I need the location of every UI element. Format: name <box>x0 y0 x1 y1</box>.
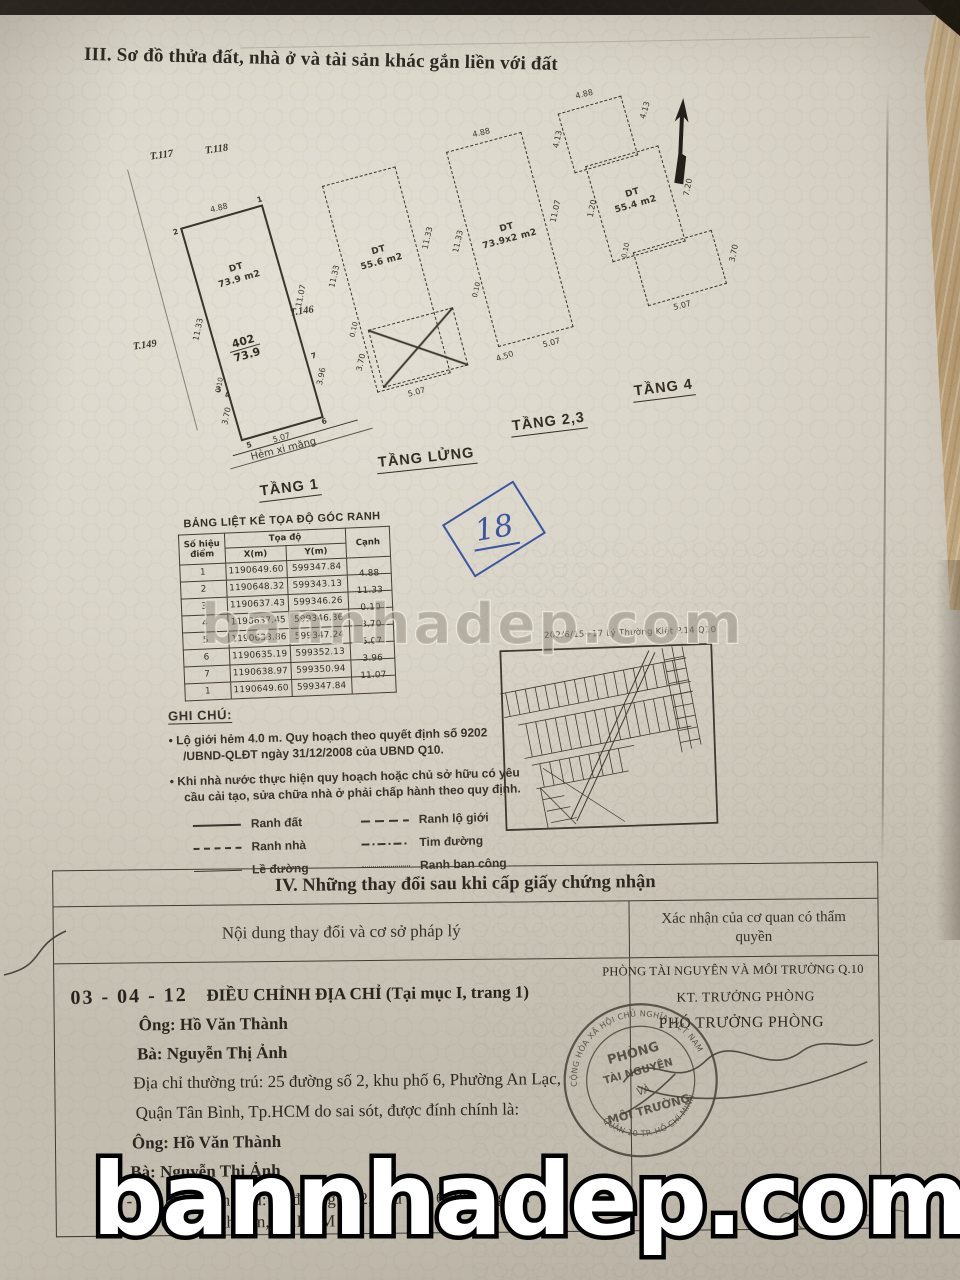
legend-item: Ranh đất <box>193 814 361 832</box>
official-round-stamp: CỘNG HÒA XÃ HỘI CHỦ NGHĨA VIỆT NAM QUẬN … <box>542 982 740 1184</box>
corner-point: 4 <box>224 390 231 400</box>
dim-label: 5.07 <box>672 299 691 312</box>
entry-line: Ông: Hồ Văn Thành <box>139 1014 288 1036</box>
entry-line: Lạc, Quận Bình Tân, Tp.HCM <box>127 1211 336 1233</box>
entry-line: Ông: Hồ Văn Thành <box>132 1132 281 1154</box>
legend-item: Tim đường <box>361 832 523 850</box>
section4-header-row: Nội dung thay đổi và cơ sở pháp lý Xác n… <box>53 898 878 964</box>
entry-line: Bà: Nguyễn Thị Ảnh <box>130 1161 281 1183</box>
entry-line: Địa chỉ thường trú: 25 đường số 2, khu p… <box>133 1069 561 1093</box>
svg-text:VÀ: VÀ <box>635 1082 652 1098</box>
section4-table: IV. Những thay đổi sau khi cấp giấy chứn… <box>52 862 882 1238</box>
parcel-number: 402 73.9 <box>227 331 264 365</box>
col-header-point: Số hiệu điểm <box>178 533 225 565</box>
coordinate-table: BẢNG LIỆT KÊ TỌA ĐỘ GÓC RANH Số hiệu điể… <box>177 510 402 702</box>
note-bullet: • Khi nhà nước thực hiện quy hoạch hoặc … <box>170 764 523 805</box>
entry-line: - Địa chỉ thường trú: 25 đường số 2, khu… <box>126 1187 530 1211</box>
entry-line: Quận Tân Bình, Tp.HCM do sai sót, được đ… <box>136 1099 520 1123</box>
col-header-confirmation: Xác nhận của cơ quan có thẩm quyền <box>628 899 878 958</box>
plan-area-label: DT 73.9 m2 <box>195 251 280 297</box>
legend-line-longdash <box>361 819 409 822</box>
dim-label: 1.20 <box>586 199 599 218</box>
col-header-edge: Cạnh <box>345 526 390 558</box>
legend-line-dashdot <box>361 842 409 845</box>
entry-date: 03 - 04 - 12 <box>70 984 188 1010</box>
legend-line-solid <box>193 824 241 827</box>
section4-body: 03 - 04 - 12 ĐIỀU CHỈNH ĐỊA CHỈ (Tại mục… <box>54 955 881 1237</box>
plan-area-label: DT 55.6 m2 <box>341 235 419 277</box>
plan-area-label: DT 73.9x2 m2 <box>468 212 548 255</box>
handwritten-note <box>772 1192 922 1257</box>
notes-section: GHI CHÚ: • Lộ giới hẻm 4.0 m. Quy hoạch … <box>168 699 524 878</box>
entry-line: Bà: Nguyễn Thị Ảnh <box>137 1043 288 1065</box>
section4-title: IV. Những thay đổi sau khi cấp giấy chứn… <box>275 872 656 897</box>
plan-area-label: DT 55.4 m2 <box>595 177 673 220</box>
legend-item: Ranh lộ giới <box>361 809 523 827</box>
legend-line-dashed <box>193 847 241 850</box>
cadastral-map-inset <box>499 642 719 836</box>
dim-label: 3.70 <box>728 243 741 262</box>
legend-item: Ranh nhà <box>193 837 361 855</box>
dim-label: 4.13 <box>638 100 652 120</box>
note-bullet: • Lộ giới hẻm 4.0 m. Quy hoạch theo quyế… <box>168 723 521 764</box>
entry-heading: ĐIỀU CHỈNH ĐỊA CHỈ (Tại mục I, trang 1) <box>206 982 529 1005</box>
authority-office: PHÒNG TÀI NGUYÊN VÀ MÔI TRƯỜNG Q.10 <box>602 961 912 979</box>
col-header-changes: Nội dung thay đổi và cơ sở pháp lý <box>53 901 629 963</box>
photo-of-land-certificate-page: III. Sơ đồ thửa đất, nhà ở và tài sản kh… <box>0 0 960 1280</box>
